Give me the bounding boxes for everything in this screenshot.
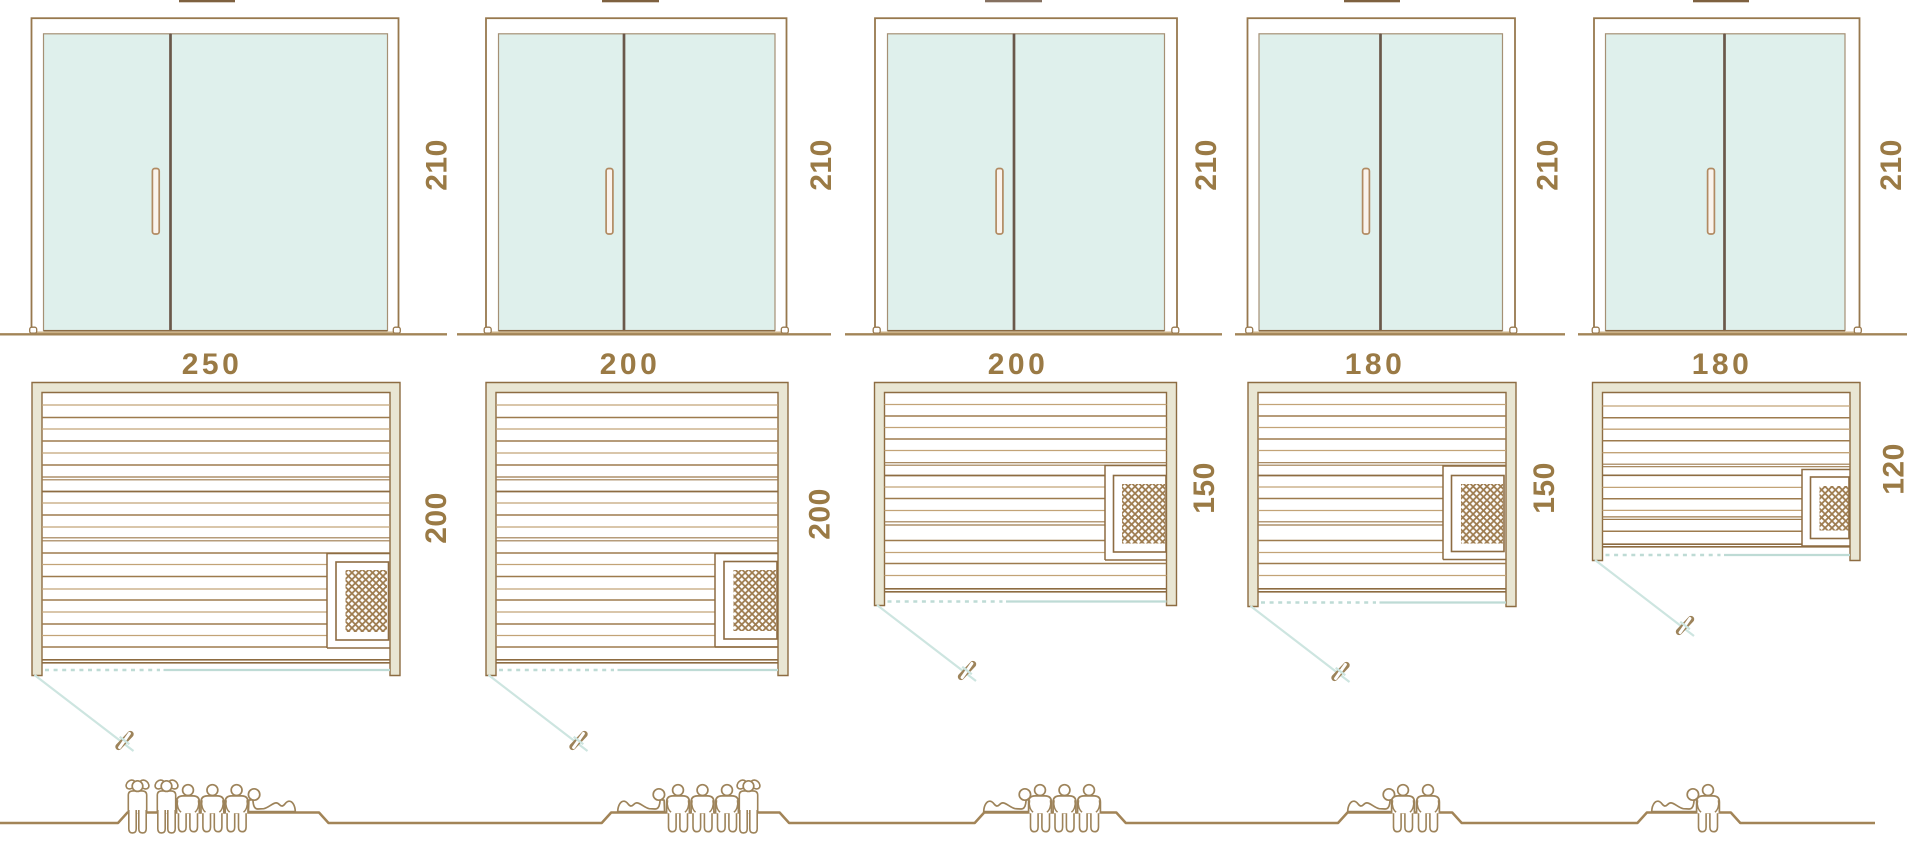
svg-text:150: 150 — [1188, 462, 1221, 514]
svg-text:210: 210 — [1532, 139, 1565, 191]
svg-text:200: 200 — [420, 492, 453, 544]
svg-text:200: 200 — [988, 348, 1049, 381]
svg-text:210: 210 — [421, 139, 454, 191]
svg-text:180: 180 — [1692, 348, 1753, 381]
svg-text:210: 210 — [1190, 139, 1223, 191]
svg-text:120: 120 — [1878, 443, 1911, 495]
svg-text:210: 210 — [805, 139, 838, 191]
svg-text:200: 200 — [600, 348, 661, 381]
svg-text:200: 200 — [804, 488, 837, 540]
svg-text:210: 210 — [1875, 139, 1908, 191]
svg-text:150: 150 — [1528, 462, 1561, 514]
svg-text:250: 250 — [182, 348, 243, 381]
svg-text:180: 180 — [1345, 348, 1406, 381]
